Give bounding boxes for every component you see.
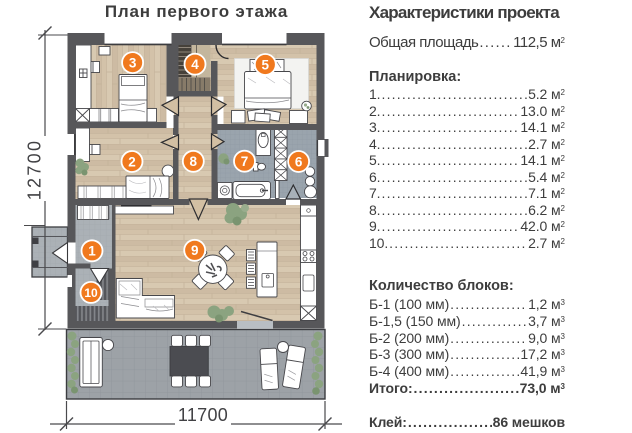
svg-text:8: 8: [190, 154, 198, 169]
svg-text:10: 10: [84, 286, 98, 300]
svg-text:4: 4: [191, 57, 199, 72]
svg-text:2: 2: [128, 154, 136, 169]
svg-text:6: 6: [295, 154, 303, 169]
svg-text:5: 5: [262, 57, 270, 72]
svg-text:7: 7: [241, 154, 249, 169]
svg-text:1: 1: [88, 244, 96, 259]
svg-text:9: 9: [191, 243, 199, 258]
svg-text:3: 3: [129, 55, 137, 70]
